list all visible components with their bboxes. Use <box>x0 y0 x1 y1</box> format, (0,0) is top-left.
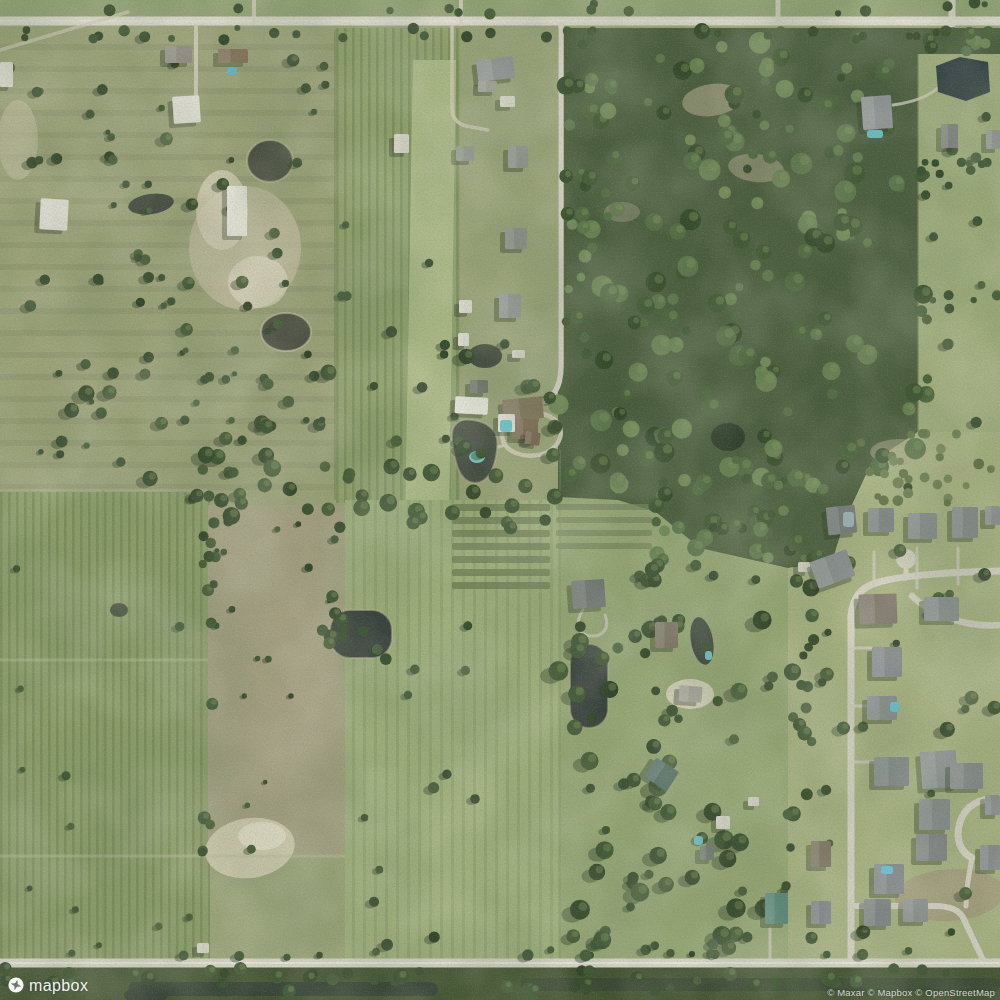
mapbox-watermark: mapbox <box>8 977 88 995</box>
mapbox-logo-icon[interactable] <box>8 978 24 994</box>
map-attribution[interactable]: © Maxar © Mapbox © OpenStreetMap <box>827 987 995 998</box>
photo-grain-light <box>0 0 1000 1000</box>
satellite-map-canvas[interactable]: mapbox © Maxar © Mapbox © OpenStreetMap <box>0 0 1000 1000</box>
satellite-imagery-layer <box>0 0 1000 1000</box>
mapbox-logo-text[interactable]: mapbox <box>29 977 88 995</box>
